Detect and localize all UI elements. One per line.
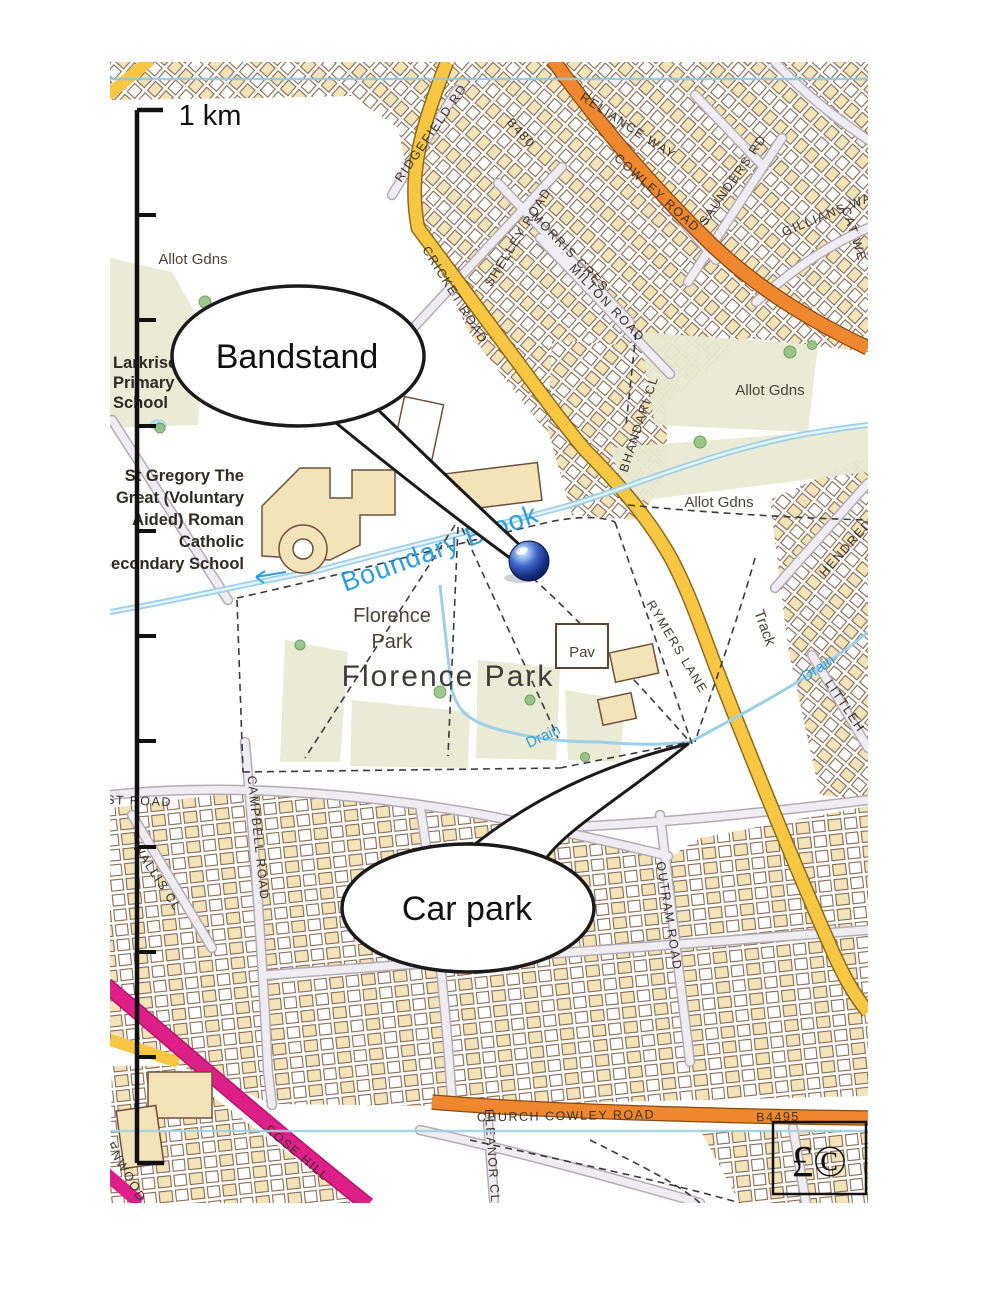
label-florence-park-small-1: Florence	[353, 605, 431, 627]
label-larkrise-3: School	[113, 394, 168, 412]
label-larkrise-1: Larkrise	[113, 354, 177, 372]
label-st-gregory-4: Catholic	[179, 533, 244, 551]
label-st-gregory-1: St Gregory The	[125, 467, 244, 485]
label-st-gregory-5: Secondary School	[100, 555, 244, 573]
label-florence-park-large: Florence Park	[342, 660, 555, 693]
label-allot-gdns-3: Allot Gdns	[684, 494, 753, 511]
map-canvas: Allot Gdns Allot Gdns Allot Gdns Larkris…	[0, 0, 1000, 1294]
map-screenshot: Allot Gdns Allot Gdns Allot Gdns Larkris…	[0, 0, 1000, 1294]
scale-bar-label: 1 km	[179, 100, 242, 132]
car-park-bubble-label: Car park	[402, 890, 533, 928]
label-pav: Pav	[569, 644, 595, 661]
bandstand-bubble-label: Bandstand	[216, 338, 379, 376]
label-allot-gdns-2: Allot Gdns	[735, 382, 804, 399]
label-st-gregory-3: Aided) Roman	[132, 511, 244, 529]
copyright-symbol: £©	[791, 1137, 846, 1186]
label-larkrise-2: Primary	[113, 374, 175, 392]
label-allot-gdns-1: Allot Gdns	[158, 251, 227, 268]
label-florence-park-small-2: Park	[371, 631, 413, 653]
